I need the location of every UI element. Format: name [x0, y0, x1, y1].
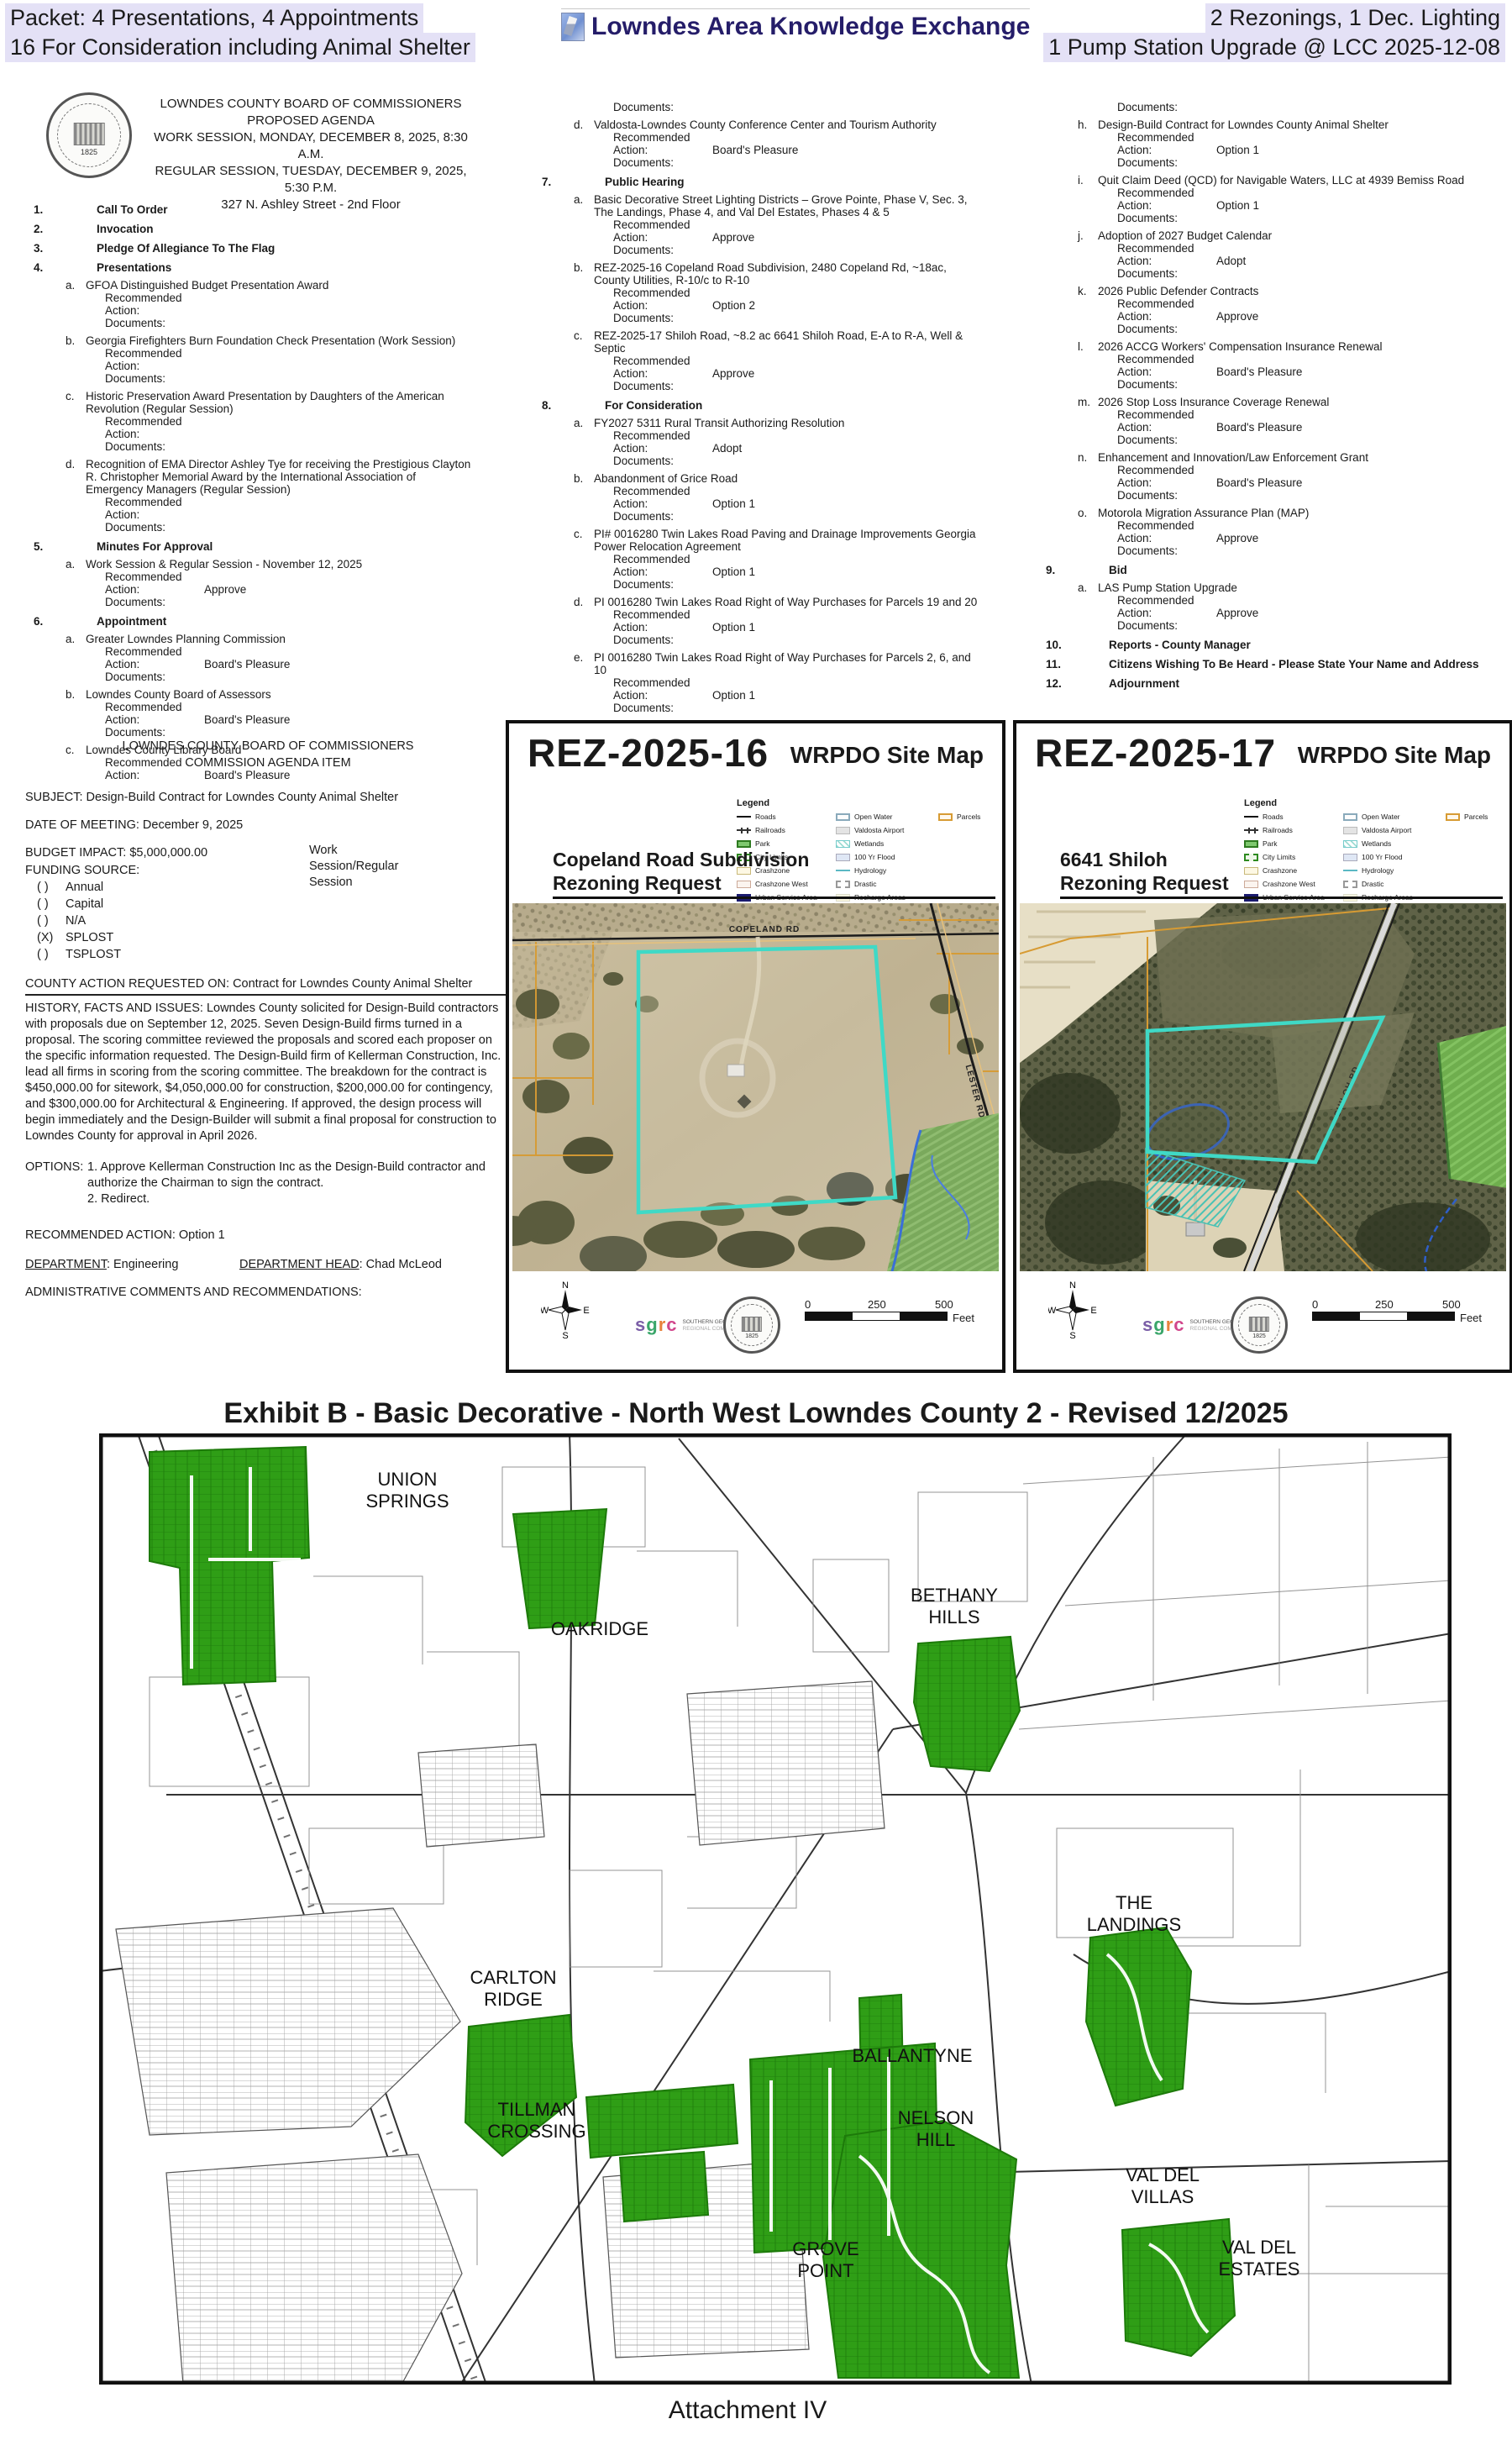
agenda-subitem-letter: b. — [66, 334, 86, 385]
agenda-item: 7.Public Hearing — [542, 176, 1025, 188]
funding-option: (X)SPLOST — [32, 929, 511, 946]
recommended-action-line: Recommended Action:Option 1 — [1117, 131, 1484, 156]
agenda-subitem: b.REZ-2025-16 Copeland Road Subdivision,… — [542, 261, 1025, 324]
legend-row: Valdosta Airport — [1343, 823, 1446, 837]
cai-funding-label: FUNDING SOURCE: — [25, 863, 511, 879]
funding-checkbox: (X) — [37, 929, 66, 946]
agenda-subitem-text: Lowndes County Board of Assessors — [86, 688, 472, 701]
agenda-item: 2.Invocation — [34, 223, 517, 235]
agenda-item-number: 1. — [34, 203, 64, 216]
agenda-item: 12.Adjournment — [1046, 677, 1512, 690]
legend-railroads-swatch-icon — [1244, 828, 1258, 833]
agenda-item-title: Reports - County Manager — [1076, 639, 1251, 651]
cai-action-requested: COUNTY ACTION REQUESTED ON: Contract for… — [25, 976, 511, 996]
legend-label: Railroads — [1263, 826, 1293, 834]
legend-label: Parcels — [1464, 812, 1488, 821]
agenda-subitem-letter: d. — [66, 458, 86, 534]
agenda-subitem-text: Enhancement and Innovation/Law Enforceme… — [1098, 451, 1484, 464]
recommended-action-value: Approve — [712, 367, 754, 380]
map-label-bethany-hills: BETHANY — [911, 1585, 998, 1606]
legend-park-swatch-icon — [737, 840, 751, 848]
legend-drastic-swatch-icon — [1343, 881, 1357, 888]
agenda-item: 4.Presentations — [34, 261, 517, 274]
documents-line: Documents: — [105, 726, 472, 739]
recommended-action-value: Option 2 — [712, 299, 755, 312]
map-label-union-springs: UNION — [378, 1469, 438, 1490]
agenda-subitem: i.Quit Claim Deed (QCD) for Navigable Wa… — [1046, 174, 1512, 224]
agenda-subitem-text: PI 0016280 Twin Lakes Road Right of Way … — [594, 596, 980, 608]
agenda-subitem-letter: c. — [66, 390, 86, 453]
rez16-request-line1: Copeland Road Subdivision — [553, 848, 809, 871]
agenda-item-number: 6. — [34, 615, 64, 628]
legend-label: Park — [755, 839, 769, 848]
recommended-action-value: Approve — [204, 583, 246, 596]
recommended-action-value: Approve — [1216, 607, 1258, 619]
road-label-copeland: COPELAND RD — [729, 925, 800, 934]
documents-line: Documents: — [1117, 489, 1484, 502]
legend-citylimits-swatch-icon — [1244, 854, 1258, 861]
map-label-val-del-estates: ESTATES — [1219, 2259, 1300, 2280]
agenda-subitem-letter: e. — [574, 651, 594, 714]
map-label-nelson-hill: HILL — [916, 2129, 955, 2150]
agenda-header-line: REGULAR SESSION, TUESDAY, DECEMBER 9, 20… — [143, 163, 479, 197]
agenda-item-number: 2. — [34, 223, 64, 235]
agenda-column-3: Documents:h.Design-Build Contract for Lo… — [1046, 101, 1512, 690]
agenda-subitem-text: FY2027 5311 Rural Transit Authorizing Re… — [594, 417, 980, 429]
documents-line: Documents: — [613, 312, 980, 324]
recommended-action-value: Option 1 — [712, 621, 755, 634]
agenda-subitem: b.Abandonment of Grice RoadRecommended A… — [542, 472, 1025, 523]
scale-0: 0 — [805, 1298, 811, 1311]
agenda-header-line: LOWNDES COUNTY BOARD OF COMMISSIONERS — [143, 96, 479, 113]
divider — [553, 897, 995, 899]
legend-label: Wetlands — [1362, 839, 1391, 848]
agenda-subitem: a.Basic Decorative Street Lighting Distr… — [542, 193, 1025, 256]
legend-label: 100 Yr Flood — [854, 853, 895, 861]
documents-line: Documents: — [1117, 619, 1484, 632]
legend-label: Park — [1263, 839, 1277, 848]
legend-row: City Limits — [1244, 850, 1343, 864]
recommended-action-line: Recommended Action:Board's Pleasure — [1117, 408, 1484, 434]
recommended-action-value: Option 1 — [712, 689, 755, 702]
svg-text:E: E — [1090, 1306, 1096, 1316]
rez-2025-16-map-card: REZ-2025-16 WRPDO Site Map LegendRoadsRa… — [506, 720, 1005, 1373]
recommended-action-value: Adopt — [712, 442, 742, 455]
agenda-item-title: Bid — [1076, 564, 1127, 576]
legend-flood-swatch-icon — [1343, 854, 1357, 861]
legend-crashzone-swatch-icon — [1244, 867, 1258, 875]
map-label-tillman-crossing: CROSSING — [487, 2121, 585, 2142]
rez16-request-label: Copeland Road Subdivision Rezoning Reque… — [553, 848, 809, 895]
agenda-subitem-letter: a. — [574, 417, 594, 467]
exhibit-title: Exhibit B - Basic Decorative - North Wes… — [0, 1397, 1512, 1430]
cai-recommended-action: RECOMMENDED ACTION: Option 1 — [25, 1228, 511, 1244]
cai-date: DATE OF MEETING: December 9, 2025 — [25, 818, 243, 832]
agenda-item-title: Pledge Of Allegiance To The Flag — [64, 242, 275, 255]
rez17-request-line2: Rezoning Request — [1060, 871, 1229, 895]
legend-row: 100 Yr Flood — [1343, 850, 1446, 864]
agenda-subitem-letter: b. — [66, 688, 86, 739]
agenda-subitem: c.REZ-2025-17 Shiloh Road, ~8.2 ac 6641 … — [542, 329, 1025, 392]
map-label-carlton-ridge: CARLTON — [470, 1967, 556, 1988]
agenda-subitem-text: Quit Claim Deed (QCD) for Navigable Wate… — [1098, 174, 1484, 187]
funding-label: Capital — [66, 896, 103, 912]
funding-label: TSPLOST — [66, 946, 121, 963]
agenda-item-number: 11. — [1046, 658, 1076, 670]
agenda-subitem: c.PI# 0016280 Twin Lakes Road Paving and… — [542, 528, 1025, 591]
green-tillman-2 — [620, 2152, 708, 2222]
attachment-label: Attachment IV — [0, 2396, 1495, 2425]
legend-label: 100 Yr Flood — [1362, 853, 1403, 861]
agenda-subitem: d.Recognition of EMA Director Ashley Tye… — [34, 458, 517, 534]
agenda-subitem-letter: a. — [66, 279, 86, 329]
agenda-item: 6.Appointment — [34, 615, 517, 628]
legend-roads-swatch-icon — [737, 816, 751, 818]
documents-line: Documents: — [613, 702, 980, 714]
recommended-action-line: Recommended Action:Board's Pleasure — [105, 701, 472, 726]
green-oakridge — [513, 1509, 606, 1628]
recommended-action-value: Option 1 — [1216, 199, 1259, 212]
agenda-documents-line: Documents: — [613, 101, 1025, 113]
legend-parcels-swatch-icon — [1446, 813, 1460, 821]
map-label-val-del-villas: VILLAS — [1131, 2186, 1194, 2207]
map-label-union-springs: SPRINGS — [365, 1491, 449, 1512]
recommended-action-value: Board's Pleasure — [1216, 421, 1302, 434]
recommended-action-line: Recommended Action:Option 1 — [613, 553, 980, 578]
legend-label: Railroads — [755, 826, 785, 834]
documents-line: Documents: — [613, 455, 980, 467]
legend-row: Drastic — [1343, 877, 1446, 891]
documents-line: Documents: — [105, 521, 472, 534]
seal-year: 1825 — [49, 148, 129, 156]
cai-admin-comments: ADMINISTRATIVE COMMENTS AND RECOMMENDATI… — [25, 1285, 511, 1301]
agenda-subitem: a.LAS Pump Station UpgradeRecommended Ac… — [1046, 581, 1512, 632]
recommended-action-line: Recommended Action:Approve — [105, 571, 472, 596]
legend-label: Hydrology — [1362, 866, 1394, 875]
agenda-subitem-letter: b. — [574, 472, 594, 523]
funding-option: ( )TSPLOST — [32, 946, 511, 963]
recommended-action-line: Recommended Action:Option 1 — [613, 485, 980, 510]
funding-option: ( )Capital — [32, 896, 511, 912]
recommended-action-value: Option 1 — [712, 565, 755, 578]
rez16-subtitle: WRPDO Site Map — [790, 742, 984, 769]
agenda-subitem-text: Historic Preservation Award Presentation… — [86, 390, 472, 415]
recommended-action-line: Recommended Action:Approve — [1117, 519, 1484, 544]
svg-text:E: E — [583, 1306, 589, 1316]
map-label-the-landings: THE — [1116, 1892, 1152, 1913]
commission-agenda-item: LOWNDES COUNTY BOARD OF COMMISSIONERS CO… — [25, 738, 511, 1301]
agenda-subitem-letter: a. — [574, 193, 594, 256]
map-label-ballantyne: BALLANTYNE — [852, 2045, 972, 2066]
funding-checkbox: ( ) — [37, 946, 66, 963]
agenda-subitem-text: Greater Lowndes Planning Commission — [86, 633, 472, 645]
legend-wetlands-swatch-icon — [1343, 840, 1357, 848]
cai-department-value: : Engineering — [107, 1258, 178, 1271]
legend-openwater-swatch-icon — [1343, 813, 1357, 821]
documents-line: Documents: — [1117, 267, 1484, 280]
agenda-subitem-letter: a. — [66, 633, 86, 683]
map-label-carlton-ridge: RIDGE — [484, 1989, 543, 2010]
agenda-subitem-letter: l. — [1078, 340, 1098, 391]
legend-title: Legend — [737, 799, 997, 807]
svg-text:W: W — [1048, 1306, 1057, 1316]
legend-parcels-swatch-icon — [938, 813, 953, 821]
recommended-action-line: Recommended Action: — [105, 292, 472, 317]
legend-label: Valdosta Airport — [1362, 826, 1411, 834]
legend-label: Drastic — [1362, 880, 1383, 888]
header-left-line2: 16 For Consideration including Animal Sh… — [5, 33, 475, 62]
agenda-subitem-text: 2026 ACCG Workers' Compensation Insuranc… — [1098, 340, 1484, 353]
scale-250: 250 — [868, 1298, 886, 1311]
svg-text:S: S — [562, 1331, 568, 1340]
legend-label: Roads — [1263, 812, 1284, 821]
legend-row: Railroads — [1244, 823, 1343, 837]
summary-header: Packet: 4 Presentations, 4 Appointments … — [0, 0, 1512, 66]
agenda-item-title: Presentations — [64, 261, 171, 274]
agenda-subitem: l.2026 ACCG Workers' Compensation Insura… — [1046, 340, 1512, 391]
cai-funding-list: ( )Annual( )Capital( )N/A(X)SPLOST( )TSP… — [32, 879, 511, 963]
cai-title-line1: LOWNDES COUNTY BOARD OF COMMISSIONERS — [25, 738, 511, 755]
header-right-summary: 2 Rezonings, 1 Dec. Lighting 1 Pump Stat… — [1043, 3, 1505, 62]
map-label-bethany-hills: HILLS — [928, 1607, 979, 1628]
documents-line: Documents: — [613, 578, 980, 591]
agenda-item-number: 9. — [1046, 564, 1076, 576]
rez16-id: REZ-2025-16 — [528, 730, 769, 776]
cai-option-1: 1. Approve Kellerman Construction Inc as… — [87, 1160, 486, 1190]
agenda-subitem: m.2026 Stop Loss Insurance Coverage Rene… — [1046, 396, 1512, 446]
scale-unit: Feet — [953, 1312, 974, 1324]
scale-500: 500 — [935, 1298, 953, 1311]
agenda-subitem: j.Adoption of 2027 Budget CalendarRecomm… — [1046, 229, 1512, 280]
recommended-action-value: Option 1 — [1216, 144, 1259, 156]
documents-line: Documents: — [1117, 323, 1484, 335]
svg-text:W: W — [541, 1306, 549, 1316]
legend-row: Hydrology — [1343, 864, 1446, 877]
rez17-request-line1: 6641 Shiloh — [1060, 848, 1229, 871]
legend-label: Hydrology — [854, 866, 886, 875]
legend-label: Valdosta Airport — [854, 826, 904, 834]
map-label-the-landings: LANDINGS — [1087, 1914, 1181, 1935]
legend-row: 100 Yr Flood — [836, 850, 938, 864]
recommended-action-line: Recommended Action:Adopt — [613, 429, 980, 455]
recommended-action-line: Recommended Action:Option 1 — [1117, 187, 1484, 212]
map-label-grove-point: GROVE — [792, 2238, 858, 2259]
agenda-subitem: d.Valdosta-Lowndes County Conference Cen… — [542, 118, 1025, 169]
header-left-summary: Packet: 4 Presentations, 4 Appointments … — [5, 3, 475, 62]
funding-checkbox: ( ) — [37, 896, 66, 912]
agenda-subitem-text: 2026 Stop Loss Insurance Coverage Renewa… — [1098, 396, 1484, 408]
map-label-tillman-crossing: TILLMAN — [498, 2099, 576, 2120]
agenda-subitem: a.Greater Lowndes Planning CommissionRec… — [34, 633, 517, 683]
cai-option-2: 2. Redirect. — [87, 1192, 150, 1206]
agenda-subitem: h.Design-Build Contract for Lowndes Coun… — [1046, 118, 1512, 169]
cai-subject: SUBJECT: Design-Build Contract for Lownd… — [25, 790, 511, 806]
recommended-action-line: Recommended Action:Approve — [1117, 297, 1484, 323]
legend-row: Roads — [737, 810, 836, 823]
agenda-item: 9.Bid — [1046, 564, 1512, 576]
legend-label: Open Water — [1362, 812, 1400, 821]
legend-label: Parcels — [957, 812, 980, 821]
agenda-subitem: o.Motorola Migration Assurance Plan (MAP… — [1046, 507, 1512, 557]
agenda-item: 5.Minutes For Approval — [34, 540, 517, 553]
agenda-item-number: 5. — [34, 540, 64, 553]
agenda-subitem-text: Basic Decorative Street Lighting Distric… — [594, 193, 980, 218]
documents-line: Documents: — [1117, 434, 1484, 446]
compass-rose: N S W E — [1048, 1280, 1097, 1340]
agenda-subitem-letter: d. — [574, 118, 594, 169]
legend-wetlands-swatch-icon — [836, 840, 850, 848]
recommended-action-line: Recommended Action: — [105, 415, 472, 440]
scale-bar: 0 250 500 Feet — [1312, 1298, 1480, 1321]
map-label-nelson-hill: NELSON — [898, 2107, 974, 2128]
scale-500: 500 — [1442, 1298, 1461, 1311]
agenda-subitem-text: REZ-2025-16 Copeland Road Subdivision, 2… — [594, 261, 980, 287]
header-right-line2: 1 Pump Station Upgrade @ LCC 2025-12-08 — [1043, 33, 1505, 62]
county-seal: 1825 — [723, 1296, 780, 1354]
scale-0: 0 — [1312, 1298, 1318, 1311]
map-label-oakridge: OAKRIDGE — [551, 1618, 648, 1639]
agenda-subitem-letter: b. — [574, 261, 594, 324]
agenda-subitem-letter: a. — [1078, 581, 1098, 632]
recommended-action-line: Recommended Action:Option 1 — [613, 676, 980, 702]
recommended-action-line: Recommended Action:Approve — [613, 218, 980, 244]
map-label-val-del-villas: VAL DEL — [1126, 2164, 1200, 2185]
map-label-grove-point: POINT — [797, 2260, 853, 2281]
recommended-action-line: Recommended Action:Approve — [1117, 594, 1484, 619]
legend-drastic-swatch-icon — [836, 881, 850, 888]
rez17-footer: N S W E sgrc SOUTHERN GEORGIAREGIONAL CO… — [1016, 1273, 1509, 1370]
agenda-subitem-text: Abandonment of Grice Road — [594, 472, 980, 485]
agenda-subitem-text: Recognition of EMA Director Ashley Tye f… — [86, 458, 472, 496]
legend-row: Park — [1244, 837, 1343, 850]
agenda-subitem: c.Historic Preservation Award Presentati… — [34, 390, 517, 453]
rez17-aerial-map: SHILOH RD — [1020, 903, 1506, 1271]
agenda-subitem-text: Design-Build Contract for Lowndes County… — [1098, 118, 1484, 131]
agenda-subitem: b.Lowndes County Board of AssessorsRecom… — [34, 688, 517, 739]
documents-line: Documents: — [105, 670, 472, 683]
brand: Lowndes Area Knowledge Exchange — [561, 8, 1030, 41]
agenda-subitem: n.Enhancement and Innovation/Law Enforce… — [1046, 451, 1512, 502]
svg-text:N: N — [562, 1280, 569, 1291]
legend-hydrology-swatch-icon — [1343, 870, 1357, 871]
legend-flood-swatch-icon — [836, 854, 850, 861]
agenda-item: 1.Call To Order — [34, 203, 517, 216]
agenda-subitem-text: Valdosta-Lowndes County Conference Cente… — [594, 118, 980, 131]
agenda-subitem-letter: i. — [1078, 174, 1098, 224]
agenda-subitem-letter: c. — [574, 528, 594, 591]
legend-roads-swatch-icon — [1244, 816, 1258, 818]
agenda-subitem-text: Work Session & Regular Session - Novembe… — [86, 558, 472, 571]
legend-label: Crashzone — [1263, 866, 1297, 875]
agenda-subitem-letter: a. — [66, 558, 86, 608]
recommended-action-value: Board's Pleasure — [204, 658, 290, 670]
agenda-item-title: Minutes For Approval — [64, 540, 213, 553]
recommended-action-value: Approve — [1216, 310, 1258, 323]
funding-checkbox: ( ) — [37, 879, 66, 896]
documents-line: Documents: — [1117, 378, 1484, 391]
svg-text:S: S — [1069, 1331, 1075, 1340]
agenda-header: LOWNDES COUNTY BOARD OF COMMISSIONERS PR… — [143, 96, 479, 213]
recommended-action-line: Recommended Action:Option 1 — [613, 608, 980, 634]
cai-department-label: DEPARTMENT — [25, 1258, 107, 1271]
legend-railroads-swatch-icon — [737, 828, 751, 833]
funding-label: Annual — [66, 879, 103, 896]
agenda-column-1: 1.Call To Order2.Invocation3.Pledge Of A… — [34, 197, 517, 781]
legend-row: Wetlands — [1343, 837, 1446, 850]
agenda-item-number: 10. — [1046, 639, 1076, 651]
rez-2025-17-map-card: REZ-2025-17 WRPDO Site Map LegendRoadsRa… — [1013, 720, 1512, 1373]
agenda-subitem: a.Work Session & Regular Session - Novem… — [34, 558, 517, 608]
scale-unit: Feet — [1460, 1312, 1482, 1324]
svg-text:N: N — [1069, 1280, 1076, 1291]
agenda-header-line: PROPOSED AGENDA — [143, 113, 479, 129]
recommended-action-value: Board's Pleasure — [712, 144, 798, 156]
agenda-item: 11.Citizens Wishing To Be Heard - Please… — [1046, 658, 1512, 670]
legend-airport-swatch-icon — [1343, 827, 1357, 834]
divider — [1060, 897, 1503, 899]
agenda-item-number: 4. — [34, 261, 64, 274]
legend-row: Roads — [1244, 810, 1343, 823]
legend-hydrology-swatch-icon — [836, 870, 850, 871]
legend-row: Drastic — [836, 877, 938, 891]
agenda-item-title: Call To Order — [64, 203, 168, 216]
legend-crashzonewest-swatch-icon — [1244, 881, 1258, 888]
exhibit-map: UNIONSPRINGSOAKRIDGEBETHANYHILLSTHELANDI… — [99, 1433, 1452, 2385]
agenda-item: 8.For Consideration — [542, 399, 1025, 412]
agenda-item-title: Citizens Wishing To Be Heard - Please St… — [1076, 658, 1479, 670]
legend-label: Wetlands — [854, 839, 884, 848]
agenda-subitem: a.FY2027 5311 Rural Transit Authorizing … — [542, 417, 1025, 467]
legend-label: Crashzone West — [1263, 880, 1315, 888]
agenda-subitem-text: GFOA Distinguished Budget Presentation A… — [86, 279, 472, 292]
legend-row: Crashzone — [1244, 864, 1343, 877]
agenda-item-title: Invocation — [64, 223, 154, 235]
legend-park-swatch-icon — [1244, 840, 1258, 848]
cai-budget: BUDGET IMPACT: $5,000,000.00 — [25, 845, 511, 861]
agenda-subitem: e.PI 0016280 Twin Lakes Road Right of Wa… — [542, 651, 1025, 714]
recommended-action-value: Board's Pleasure — [1216, 365, 1302, 378]
legend-row: Parcels — [938, 810, 994, 823]
agenda-subitem-letter: k. — [1078, 285, 1098, 335]
legend-row: Parcels — [1446, 810, 1501, 823]
agenda-item-number: 8. — [542, 399, 572, 412]
documents-line: Documents: — [613, 380, 980, 392]
header-right-line1: 2 Rezonings, 1 Dec. Lighting — [1205, 3, 1505, 33]
legend-row: Valdosta Airport — [836, 823, 938, 837]
agenda-item-number: 7. — [542, 176, 572, 188]
agenda-item-number: 3. — [34, 242, 64, 255]
legend-row: Open Water — [836, 810, 938, 823]
cai-title-line2: COMMISSION AGENDA ITEM — [25, 755, 511, 771]
brand-title: Lowndes Area Knowledge Exchange — [591, 13, 1030, 41]
agenda-subitem-text: Georgia Firefighters Burn Foundation Che… — [86, 334, 472, 347]
cai-department-head-value: : Chad McLeod — [360, 1258, 442, 1271]
recommended-action-value: Board's Pleasure — [1216, 476, 1302, 489]
map-label-val-del-estates: VAL DEL — [1222, 2237, 1296, 2258]
recommended-action-line: Recommended Action:Approve — [613, 355, 980, 380]
legend-row: Crashzone West — [1244, 877, 1343, 891]
agenda-subitem-letter: n. — [1078, 451, 1098, 502]
scale-250: 250 — [1375, 1298, 1394, 1311]
documents-line: Documents: — [613, 244, 980, 256]
recommended-action-line: Recommended Action:Board's Pleasure — [1117, 464, 1484, 489]
legend-airport-swatch-icon — [836, 827, 850, 834]
legend-row: Railroads — [737, 823, 836, 837]
rez17-id: REZ-2025-17 — [1035, 730, 1276, 776]
agenda-subitem: b.Georgia Firefighters Burn Foundation C… — [34, 334, 517, 385]
documents-line: Documents: — [105, 317, 472, 329]
rez16-request-line2: Rezoning Request — [553, 871, 809, 895]
